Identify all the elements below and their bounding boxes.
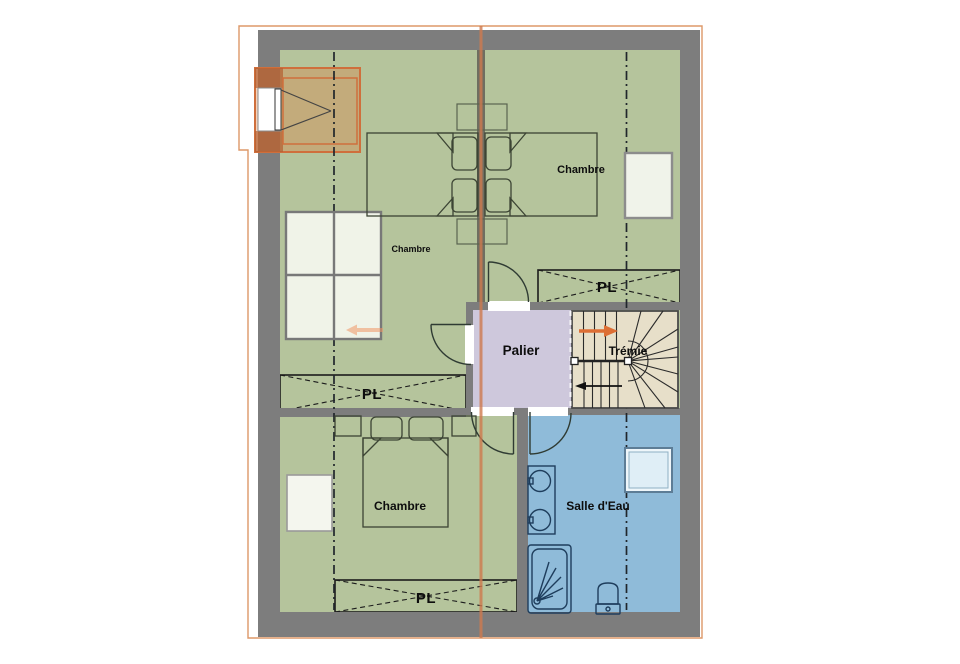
handrail-post — [571, 358, 578, 365]
label-bathroom: Salle d'Eau — [566, 499, 630, 513]
dormer-window — [255, 68, 360, 152]
wall-mid-left — [280, 408, 466, 417]
label-closet-bottom: PL — [416, 590, 436, 607]
label-bedroom-top-left: Chambre — [391, 244, 430, 254]
handrail-post — [625, 358, 632, 365]
label-closet-middle: PL — [362, 386, 382, 403]
wall-bedroom-bathroom — [517, 413, 528, 612]
window-bottom-left — [287, 475, 332, 531]
roof-window-bathroom — [625, 448, 672, 492]
room-landing — [473, 310, 572, 409]
label-bedroom-top-right: Chambre — [557, 164, 605, 176]
floor-plan-canvas: Chambre Chambre Chambre Palier Trémie Sa… — [0, 0, 960, 664]
window-sash — [275, 89, 281, 130]
staircase — [571, 311, 679, 408]
label-stairwell: Trémie — [609, 344, 648, 358]
label-closet-top: PL — [597, 279, 617, 296]
floor-plan: Chambre Chambre Chambre Palier Trémie Sa… — [0, 0, 960, 664]
label-bedroom-bottom: Chambre — [374, 499, 426, 513]
label-landing: Palier — [503, 343, 541, 358]
roof-window-top-right — [625, 153, 672, 218]
roof-window-grid — [286, 212, 381, 339]
